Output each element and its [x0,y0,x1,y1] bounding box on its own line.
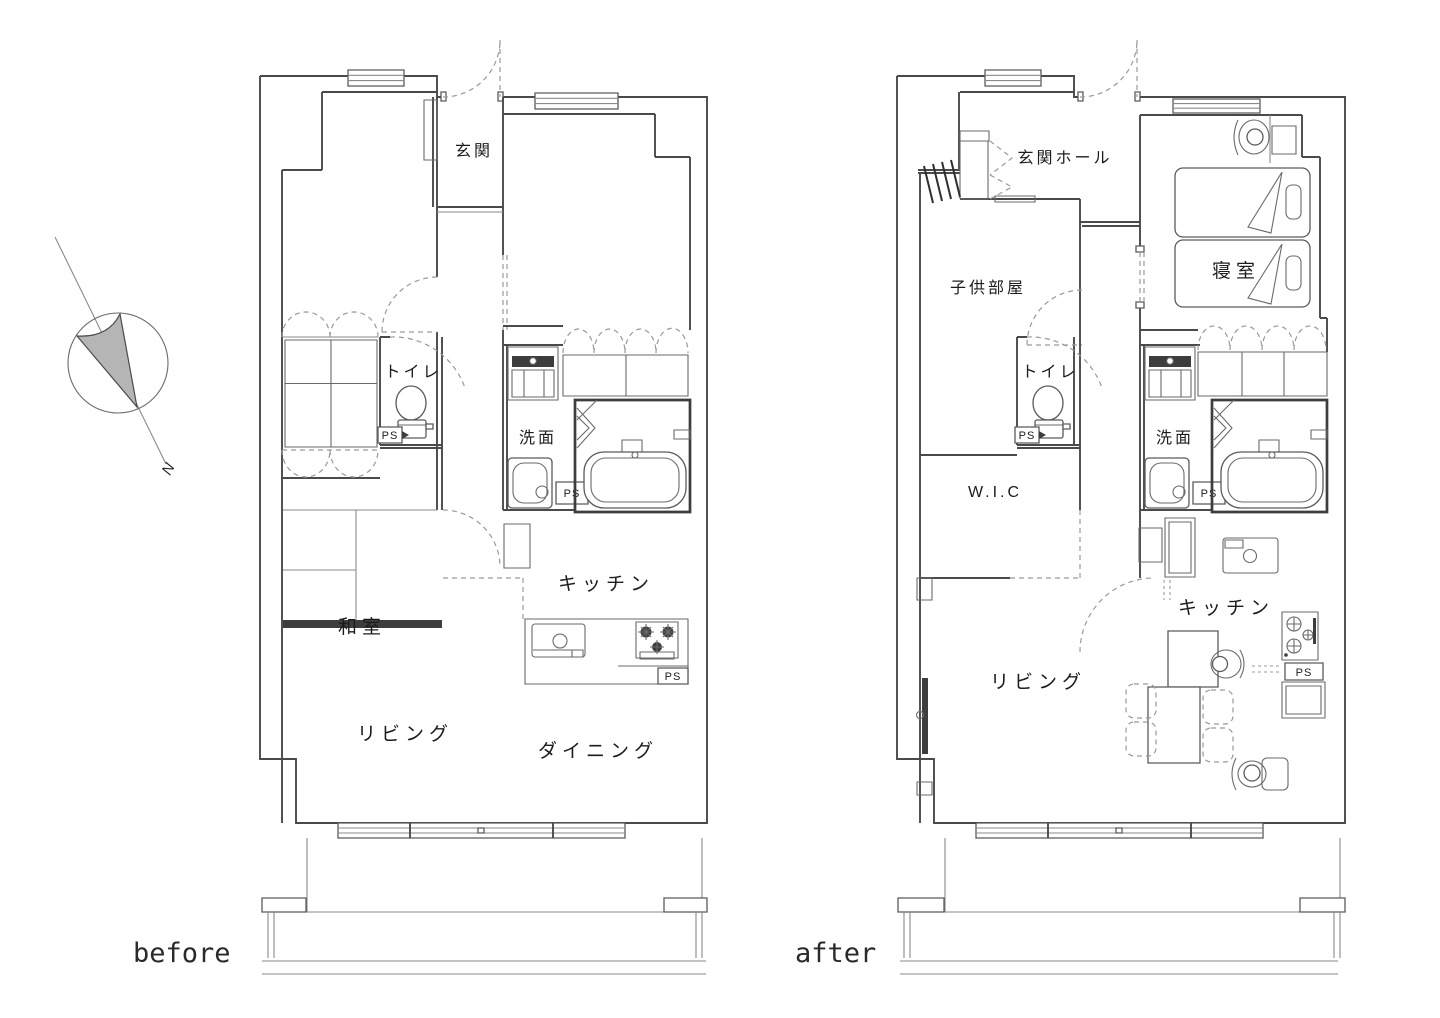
svg-text:PS: PS [1019,430,1036,442]
counter [1282,682,1325,718]
person-head [1213,657,1228,672]
room-label-kitchen: キッチン [558,574,654,595]
coat-hooks-icon [924,160,960,203]
room-label-bedroom: 寝室 [1212,260,1260,282]
ground-line [900,961,1338,974]
wic-dashed-boundary [1010,510,1080,578]
window [985,70,1041,86]
chair-person [1211,650,1244,678]
ps-shaft: PS [1285,663,1323,680]
compass-needle [77,314,137,407]
desk-chair-person [1234,115,1296,163]
sink-icon [1223,538,1278,573]
room-label-toilet: トイレ [384,364,441,381]
window [348,70,404,86]
cabinet [1139,528,1162,562]
desk [1272,126,1296,154]
entry-door-arc [443,40,500,97]
tatami-lines [283,510,442,628]
washing-machine [508,347,558,400]
caption-after: after [795,938,876,969]
bathtub-icon [584,452,686,508]
sink-icon [532,624,585,657]
sliding-window [338,823,625,838]
washing-machine [1145,347,1195,400]
washbasin-icon [1145,458,1189,508]
floorplan-drawing: N [0,0,1440,1018]
window [535,93,618,109]
column [664,898,707,912]
sliding-window [976,823,1263,838]
closet [563,328,688,396]
room-label-kids-room: 子供部屋 [950,279,1026,297]
room-label-dining: ダイニング [538,740,658,762]
room-label-toilet: トイレ [1021,364,1078,381]
shoe-closet [960,131,1012,199]
room-label-washitsu: 和室 [338,616,386,638]
folding-door [577,408,595,448]
column [1300,898,1345,912]
bed-icon [1175,168,1310,237]
door-arc [382,277,437,332]
ground-line [262,961,706,974]
stove-icon [636,622,678,659]
door-jamb [1136,302,1144,308]
caption-before: before [133,938,231,969]
svg-text:PS: PS [1201,488,1218,500]
sliding-door [1140,252,1144,302]
chair-person [1232,758,1288,790]
door-arc [443,510,500,567]
svg-text:PS: PS [564,488,581,500]
room-label-kitchen: キッチン [1178,598,1274,619]
balcony [898,823,1345,974]
svg-text:PS: PS [665,671,682,683]
closet [282,312,378,447]
kitchen-boundary-dashed [443,578,523,619]
balcony [262,823,707,974]
window [1173,99,1260,113]
sliding-door [503,255,507,330]
room-label-living: リビング [357,723,453,745]
room-label-wic: W.I.C [968,484,1022,501]
chair [1203,728,1233,762]
entry-cabinet [424,100,437,160]
column [898,898,944,912]
door-arc [1027,290,1082,345]
compass: N [55,237,179,478]
stove-icon [1282,612,1318,660]
svg-text:PS: PS [382,430,399,442]
person-head [1247,129,1263,145]
posts [904,912,1340,958]
ps-shaft: PS [658,668,688,684]
door-jamb [1136,246,1144,252]
bathroom [575,400,690,512]
posts [268,912,702,958]
washbasin-icon [508,458,552,508]
column [262,898,306,912]
vent-dashes [1252,666,1280,672]
ps-shaft: PS [556,482,588,504]
floorplan-canvas: N [0,0,1440,1018]
floor-plan-before: PS PS [260,40,707,974]
bathroom [1212,400,1327,512]
room-label-living: リビング [990,671,1086,693]
ps-shaft: PS [1193,482,1225,504]
closet-doors [282,450,378,477]
floor-plan-after: PS [897,40,1345,974]
bathtub-icon [1221,452,1323,508]
room-label-washroom: 洗面 [1156,429,1194,447]
person-head [1244,765,1260,781]
hall-cabinet [504,524,530,568]
svg-text:PS: PS [1296,667,1313,679]
room-label-washroom: 洗面 [519,429,557,447]
entry-door-arc [1080,40,1137,97]
folding-door [1214,408,1232,448]
door-arc [1080,578,1154,652]
closet [1198,326,1327,396]
chair [1203,690,1233,724]
tv [917,678,929,754]
room-label-entrance-hall: 玄関ホール [1017,149,1112,167]
compass-north-label: N [159,460,179,478]
dining-table [1148,631,1218,763]
room-label-genkan: 玄関 [455,142,493,160]
